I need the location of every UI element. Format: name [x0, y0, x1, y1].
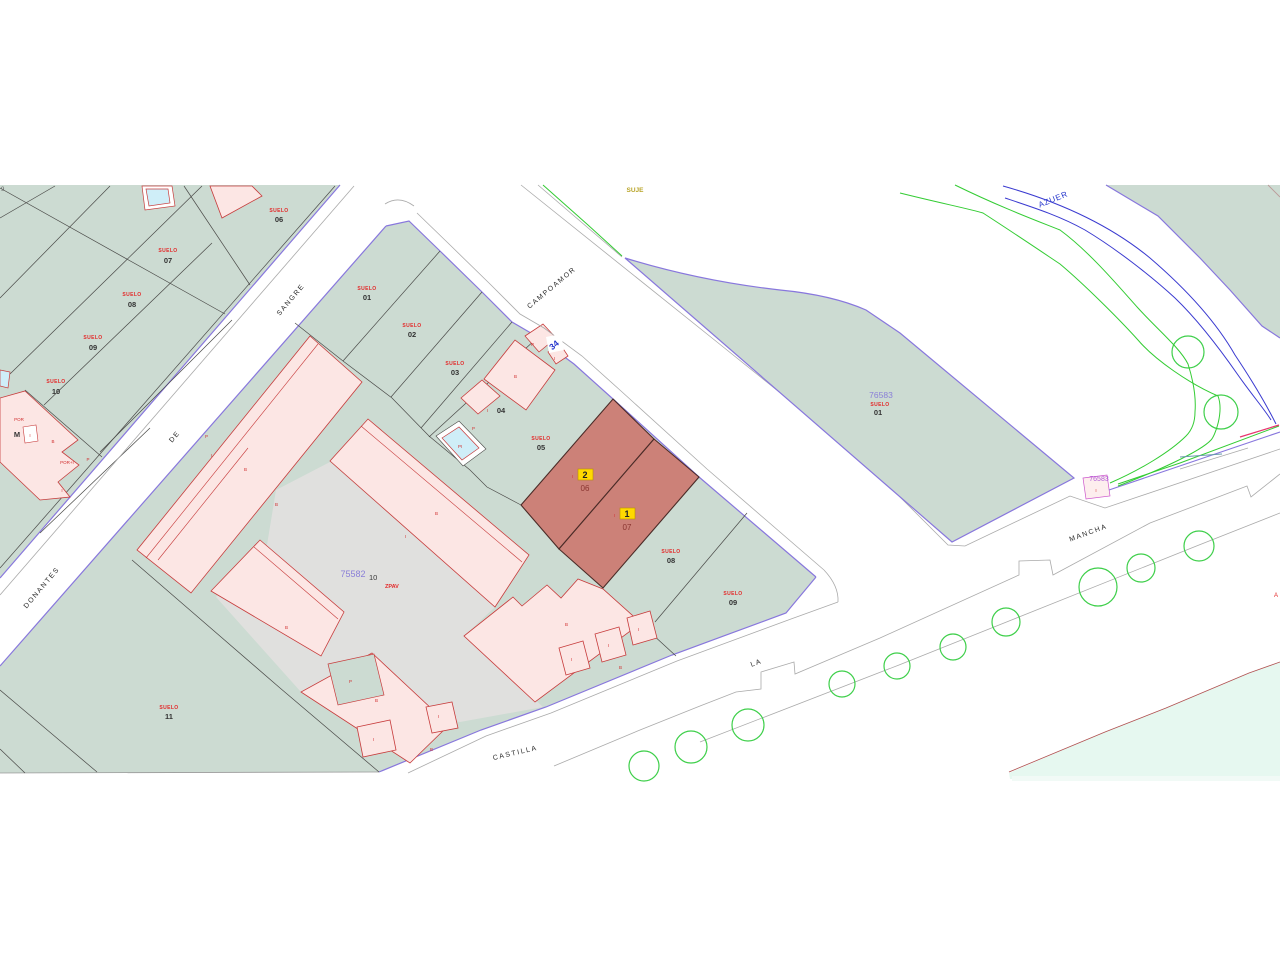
svg-text:08: 08	[128, 300, 136, 309]
svg-text:07: 07	[164, 256, 172, 265]
svg-text:P: P	[472, 426, 475, 431]
svg-text:B: B	[435, 511, 438, 516]
svg-text:I: I	[571, 657, 572, 662]
svg-text:B: B	[285, 625, 288, 630]
svg-text:01: 01	[874, 408, 882, 417]
svg-text:I: I	[614, 513, 615, 518]
svg-text:09: 09	[729, 598, 737, 607]
svg-text:B: B	[51, 439, 54, 444]
svg-text:05: 05	[537, 443, 545, 452]
svg-text:1: 1	[624, 509, 629, 519]
svg-text:P: P	[86, 457, 89, 462]
svg-text:B: B	[244, 467, 247, 472]
svg-text:03: 03	[451, 368, 459, 377]
svg-text:POR+I: POR+I	[60, 460, 74, 465]
svg-text:07: 07	[623, 523, 632, 532]
svg-text:I: I	[438, 714, 439, 719]
svg-text:I: I	[1095, 488, 1096, 493]
svg-text:SUELO: SUELO	[402, 323, 421, 329]
svg-text:B: B	[275, 502, 278, 507]
svg-text:P: P	[205, 434, 208, 439]
svg-text:I: I	[487, 408, 488, 413]
svg-text:I: I	[638, 627, 639, 632]
svg-text:I: I	[608, 643, 609, 648]
svg-text:B: B	[430, 747, 433, 752]
svg-text:06: 06	[275, 215, 283, 224]
svg-text:I: I	[373, 737, 374, 742]
svg-text:B: B	[514, 374, 517, 379]
svg-text:A: A	[1274, 593, 1278, 599]
svg-text:SUELO: SUELO	[269, 208, 288, 214]
svg-text:SUELO: SUELO	[122, 292, 141, 298]
svg-text:B: B	[619, 665, 622, 670]
svg-text:09: 09	[89, 343, 97, 352]
svg-text:75582: 75582	[340, 569, 365, 579]
svg-text:SUELO: SUELO	[159, 705, 178, 711]
svg-text:01: 01	[363, 293, 371, 302]
svg-text:M: M	[14, 430, 20, 439]
svg-text:B: B	[375, 698, 378, 703]
svg-text:P: P	[349, 679, 352, 684]
svg-text:04: 04	[497, 406, 506, 415]
svg-text:SUELO: SUELO	[158, 248, 177, 254]
svg-text:08: 08	[667, 556, 675, 565]
svg-text:10: 10	[52, 387, 60, 396]
svg-text:SUELO: SUELO	[531, 436, 550, 442]
svg-text:P: P	[531, 342, 534, 347]
svg-text:B: B	[565, 622, 568, 627]
svg-text:I: I	[554, 356, 555, 361]
svg-text:ZPAV: ZPAV	[385, 584, 399, 590]
svg-text:06: 06	[581, 484, 590, 493]
svg-text:76583: 76583	[1089, 476, 1109, 483]
svg-text:10: 10	[369, 573, 377, 582]
svg-text:76583: 76583	[869, 390, 893, 400]
svg-text:SUELO: SUELO	[46, 379, 65, 385]
svg-text:I: I	[61, 488, 62, 493]
svg-text:SUELO: SUELO	[445, 361, 464, 367]
svg-text:POR: POR	[14, 417, 25, 422]
svg-text:SUELO: SUELO	[83, 335, 102, 341]
svg-text:SUELO: SUELO	[723, 591, 742, 597]
svg-text:SUELO: SUELO	[661, 549, 680, 555]
svg-text:I: I	[211, 453, 212, 458]
svg-text:SUELO: SUELO	[357, 286, 376, 292]
svg-text:PI: PI	[458, 444, 462, 449]
svg-text:I: I	[29, 433, 30, 438]
svg-text:SUJE: SUJE	[627, 187, 645, 194]
svg-text:11: 11	[165, 712, 173, 721]
svg-text:02: 02	[408, 330, 416, 339]
svg-text:I: I	[405, 534, 406, 539]
svg-text:I: I	[572, 474, 573, 479]
svg-text:2: 2	[582, 470, 587, 480]
